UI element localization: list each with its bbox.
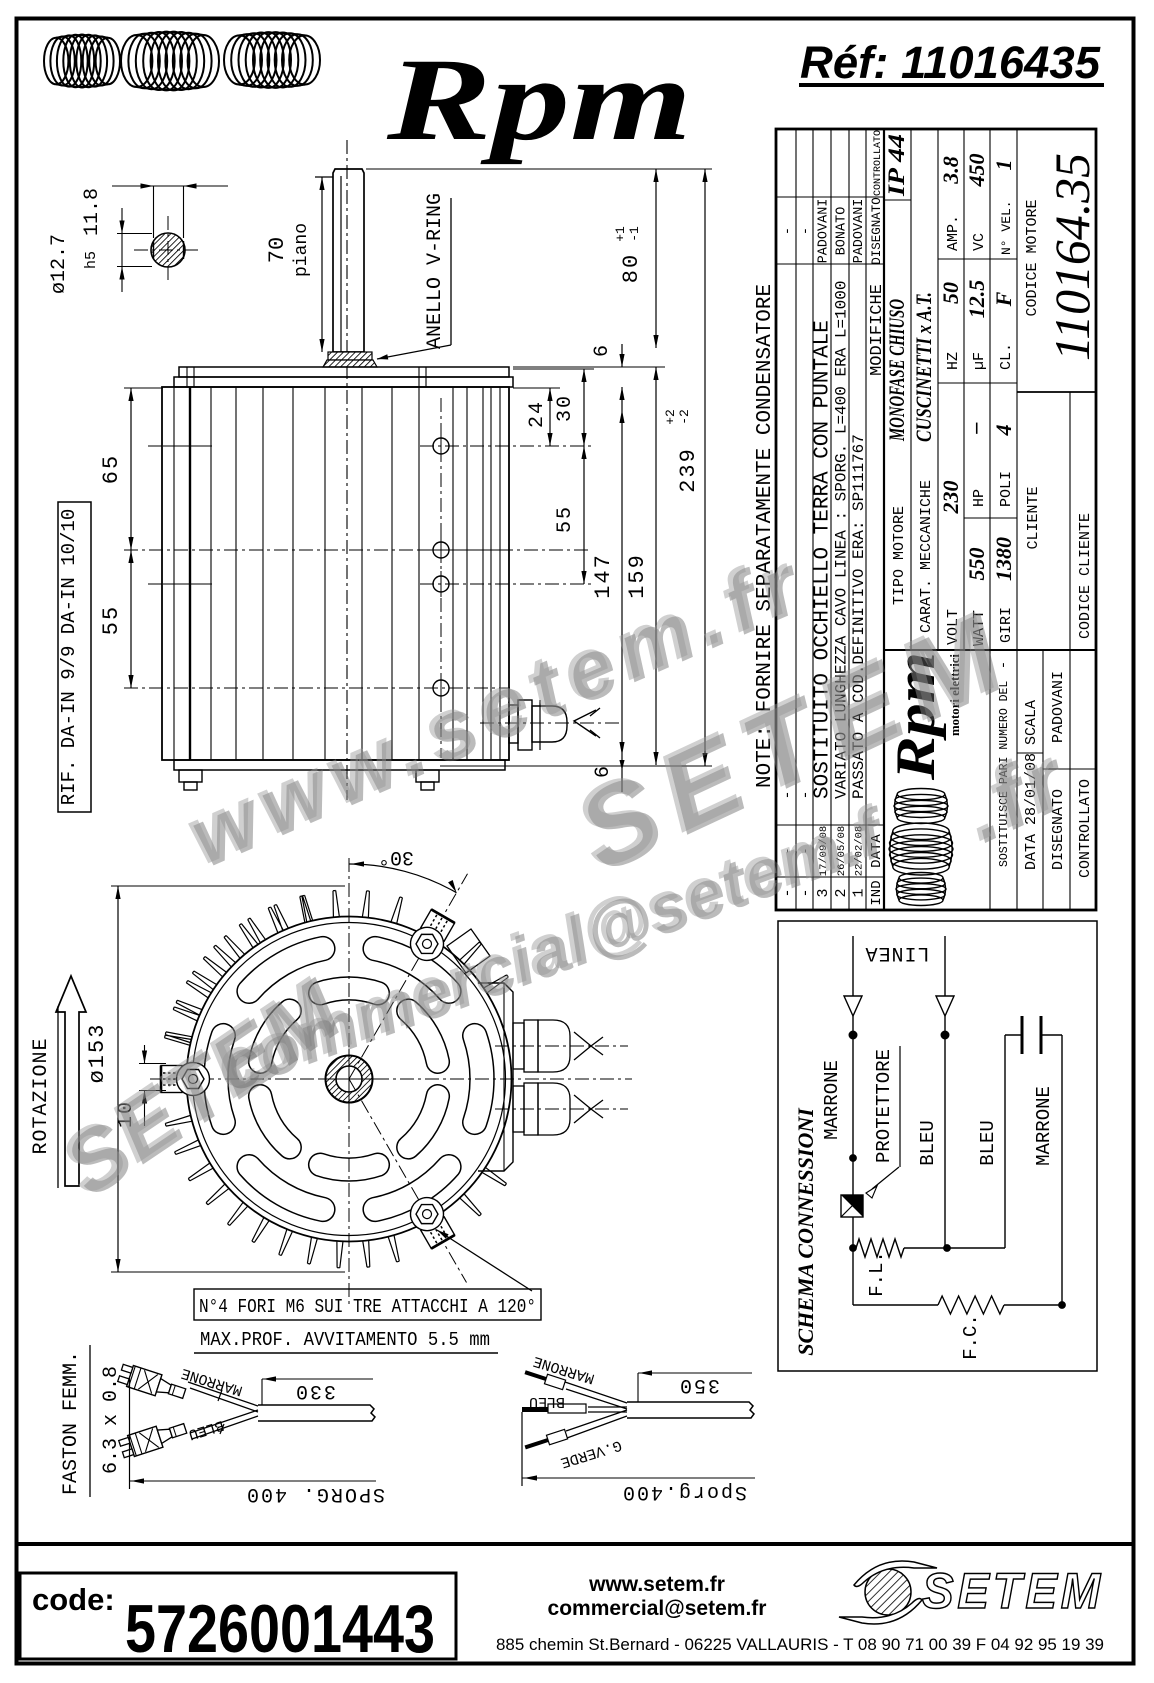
svg-text:239: 239 (676, 447, 701, 493)
svg-text:BLEU: BLEU (529, 1393, 565, 1410)
svg-text:2: 2 (833, 888, 850, 897)
svg-text:POLI: POLI (998, 471, 1015, 507)
svg-text:1380: 1380 (991, 537, 1016, 581)
svg-text:commercial@setem.fr: commercial@setem.fr (548, 1597, 767, 1620)
svg-text:MARRONE: MARRONE (821, 1060, 843, 1140)
svg-text:1: 1 (851, 888, 868, 897)
svg-text:11.8: 11.8 (81, 188, 104, 236)
svg-text:N° VEL.: N° VEL. (999, 200, 1014, 255)
svg-text:550: 550 (964, 548, 989, 581)
svg-text:SPORG. 400: SPORG. 400 (245, 1482, 385, 1505)
svg-text:µF: µF (971, 352, 988, 370)
svg-text:ø12.7: ø12.7 (48, 234, 71, 294)
svg-text:55: 55 (99, 605, 124, 635)
svg-text:ø153: ø153 (85, 1023, 110, 1084)
svg-text:MONOFASE CHIUSO: MONOFASE CHIUSO (884, 299, 909, 442)
svg-text:MAX.PROF. AVVITAMENTO 5.5 mm: MAX.PROF. AVVITAMENTO 5.5 mm (200, 1329, 490, 1351)
svg-text:code:: code: (32, 1582, 115, 1617)
svg-text:30: 30 (554, 394, 577, 422)
svg-text:450: 450 (964, 154, 989, 188)
svg-text:h5: h5 (83, 251, 100, 269)
svg-text:BLEU: BLEU (977, 1120, 999, 1166)
svg-text:PADOVANI: PADOVANI (1050, 671, 1067, 743)
svg-text:80: 80 (619, 253, 644, 283)
svg-text:HP: HP (971, 489, 988, 507)
svg-text:24: 24 (526, 400, 549, 428)
svg-text:147: 147 (591, 553, 616, 599)
svg-text:230: 230 (938, 481, 963, 515)
svg-text:PROTETTORE: PROTETTORE (873, 1049, 895, 1163)
svg-text:1: 1 (991, 160, 1016, 171)
svg-text:PADOVANI: PADOVANI (852, 199, 867, 264)
svg-text:110164.35: 110164.35 (1044, 153, 1100, 361)
svg-text:55: 55 (554, 505, 577, 533)
svg-text:HZ: HZ (945, 352, 962, 370)
svg-text:65: 65 (99, 454, 124, 484)
svg-text:3.8: 3.8 (938, 156, 963, 185)
svg-text:www.setem.fr: www.setem.fr (588, 1573, 725, 1596)
svg-text:4: 4 (991, 425, 1016, 437)
svg-text:-2: -2 (677, 409, 692, 425)
svg-text:PADOVANI: PADOVANI (817, 199, 832, 264)
svg-text:Rpm: Rpm (386, 34, 692, 165)
svg-text:+2: +2 (663, 409, 678, 425)
svg-text:IP 44: IP 44 (884, 134, 909, 197)
svg-text:LINEA: LINEA (864, 941, 929, 964)
svg-text:5726001443: 5726001443 (125, 1592, 435, 1667)
svg-text:-1: -1 (627, 226, 642, 242)
svg-text:MARRONE: MARRONE (1033, 1086, 1055, 1166)
svg-text:AMP.: AMP. (945, 215, 962, 251)
svg-text:FASTON FEMM.: FASTON FEMM. (60, 1351, 83, 1495)
svg-text:CLIENTE: CLIENTE (1025, 486, 1042, 549)
svg-text:RIF. DA-IN 9/9 DA-IN 10/10: RIF. DA-IN 9/9 DA-IN 10/10 (58, 509, 80, 805)
svg-text:30°: 30° (378, 845, 414, 868)
svg-text:12.5: 12.5 (964, 280, 989, 319)
svg-text:piano: piano (292, 223, 312, 277)
svg-text:DISEGNATO: DISEGNATO (870, 197, 884, 265)
svg-text:6.3 x 0.8: 6.3 x 0.8 (100, 1366, 123, 1474)
svg-text:F.C.: F.C. (960, 1314, 982, 1360)
svg-text:50: 50 (938, 282, 963, 304)
svg-text:CODICE MOTORE: CODICE MOTORE (1024, 199, 1041, 316)
svg-text:TIPO MOTORE: TIPO MOTORE (891, 506, 908, 605)
svg-text:+1: +1 (613, 226, 628, 242)
svg-text:CUSCINETTI x A.T.: CUSCINETTI x A.T. (911, 292, 936, 442)
svg-text:Sporg.400: Sporg.400 (621, 1480, 747, 1503)
svg-text:350: 350 (678, 1373, 720, 1396)
svg-text:CONTROLLATO: CONTROLLATO (1077, 779, 1094, 878)
svg-text:70: 70 (265, 237, 290, 263)
svg-text:CL.: CL. (998, 343, 1015, 370)
svg-text:SCHEMA CONNESSIONI: SCHEMA CONNESSIONI (793, 1107, 818, 1356)
svg-text:ANELLO V-RING: ANELLO V-RING (424, 193, 447, 349)
svg-text:BLEU: BLEU (917, 1120, 939, 1166)
svg-text:330: 330 (294, 1379, 336, 1402)
svg-text:CODICE CLIENTE: CODICE CLIENTE (1077, 513, 1094, 639)
svg-text:-: - (799, 227, 814, 235)
svg-text:6: 6 (591, 345, 614, 357)
svg-text:F: F (991, 291, 1016, 307)
svg-text:N°4 FORI M6 SUI TRE ATTACCHI A: N°4 FORI M6 SUI TRE ATTACCHI A 120° (199, 1296, 536, 1318)
svg-text:SETEM: SETEM (922, 1563, 1104, 1619)
svg-text:–: – (962, 423, 987, 435)
svg-text:VC: VC (971, 233, 988, 251)
svg-text:885 chemin St.Bernard - 0622: 885 chemin St.Bernard - 06225 VALLAURIS … (496, 1635, 1104, 1654)
svg-text:Réf: 11016435: Réf: 11016435 (800, 37, 1101, 88)
svg-text:CONTROLLATO: CONTROLLATO (873, 130, 884, 196)
svg-text:-: - (781, 227, 796, 235)
svg-text:BONATO: BONATO (835, 207, 850, 256)
svg-text:IND: IND (869, 880, 885, 905)
svg-text:F.L.: F.L. (866, 1251, 888, 1297)
